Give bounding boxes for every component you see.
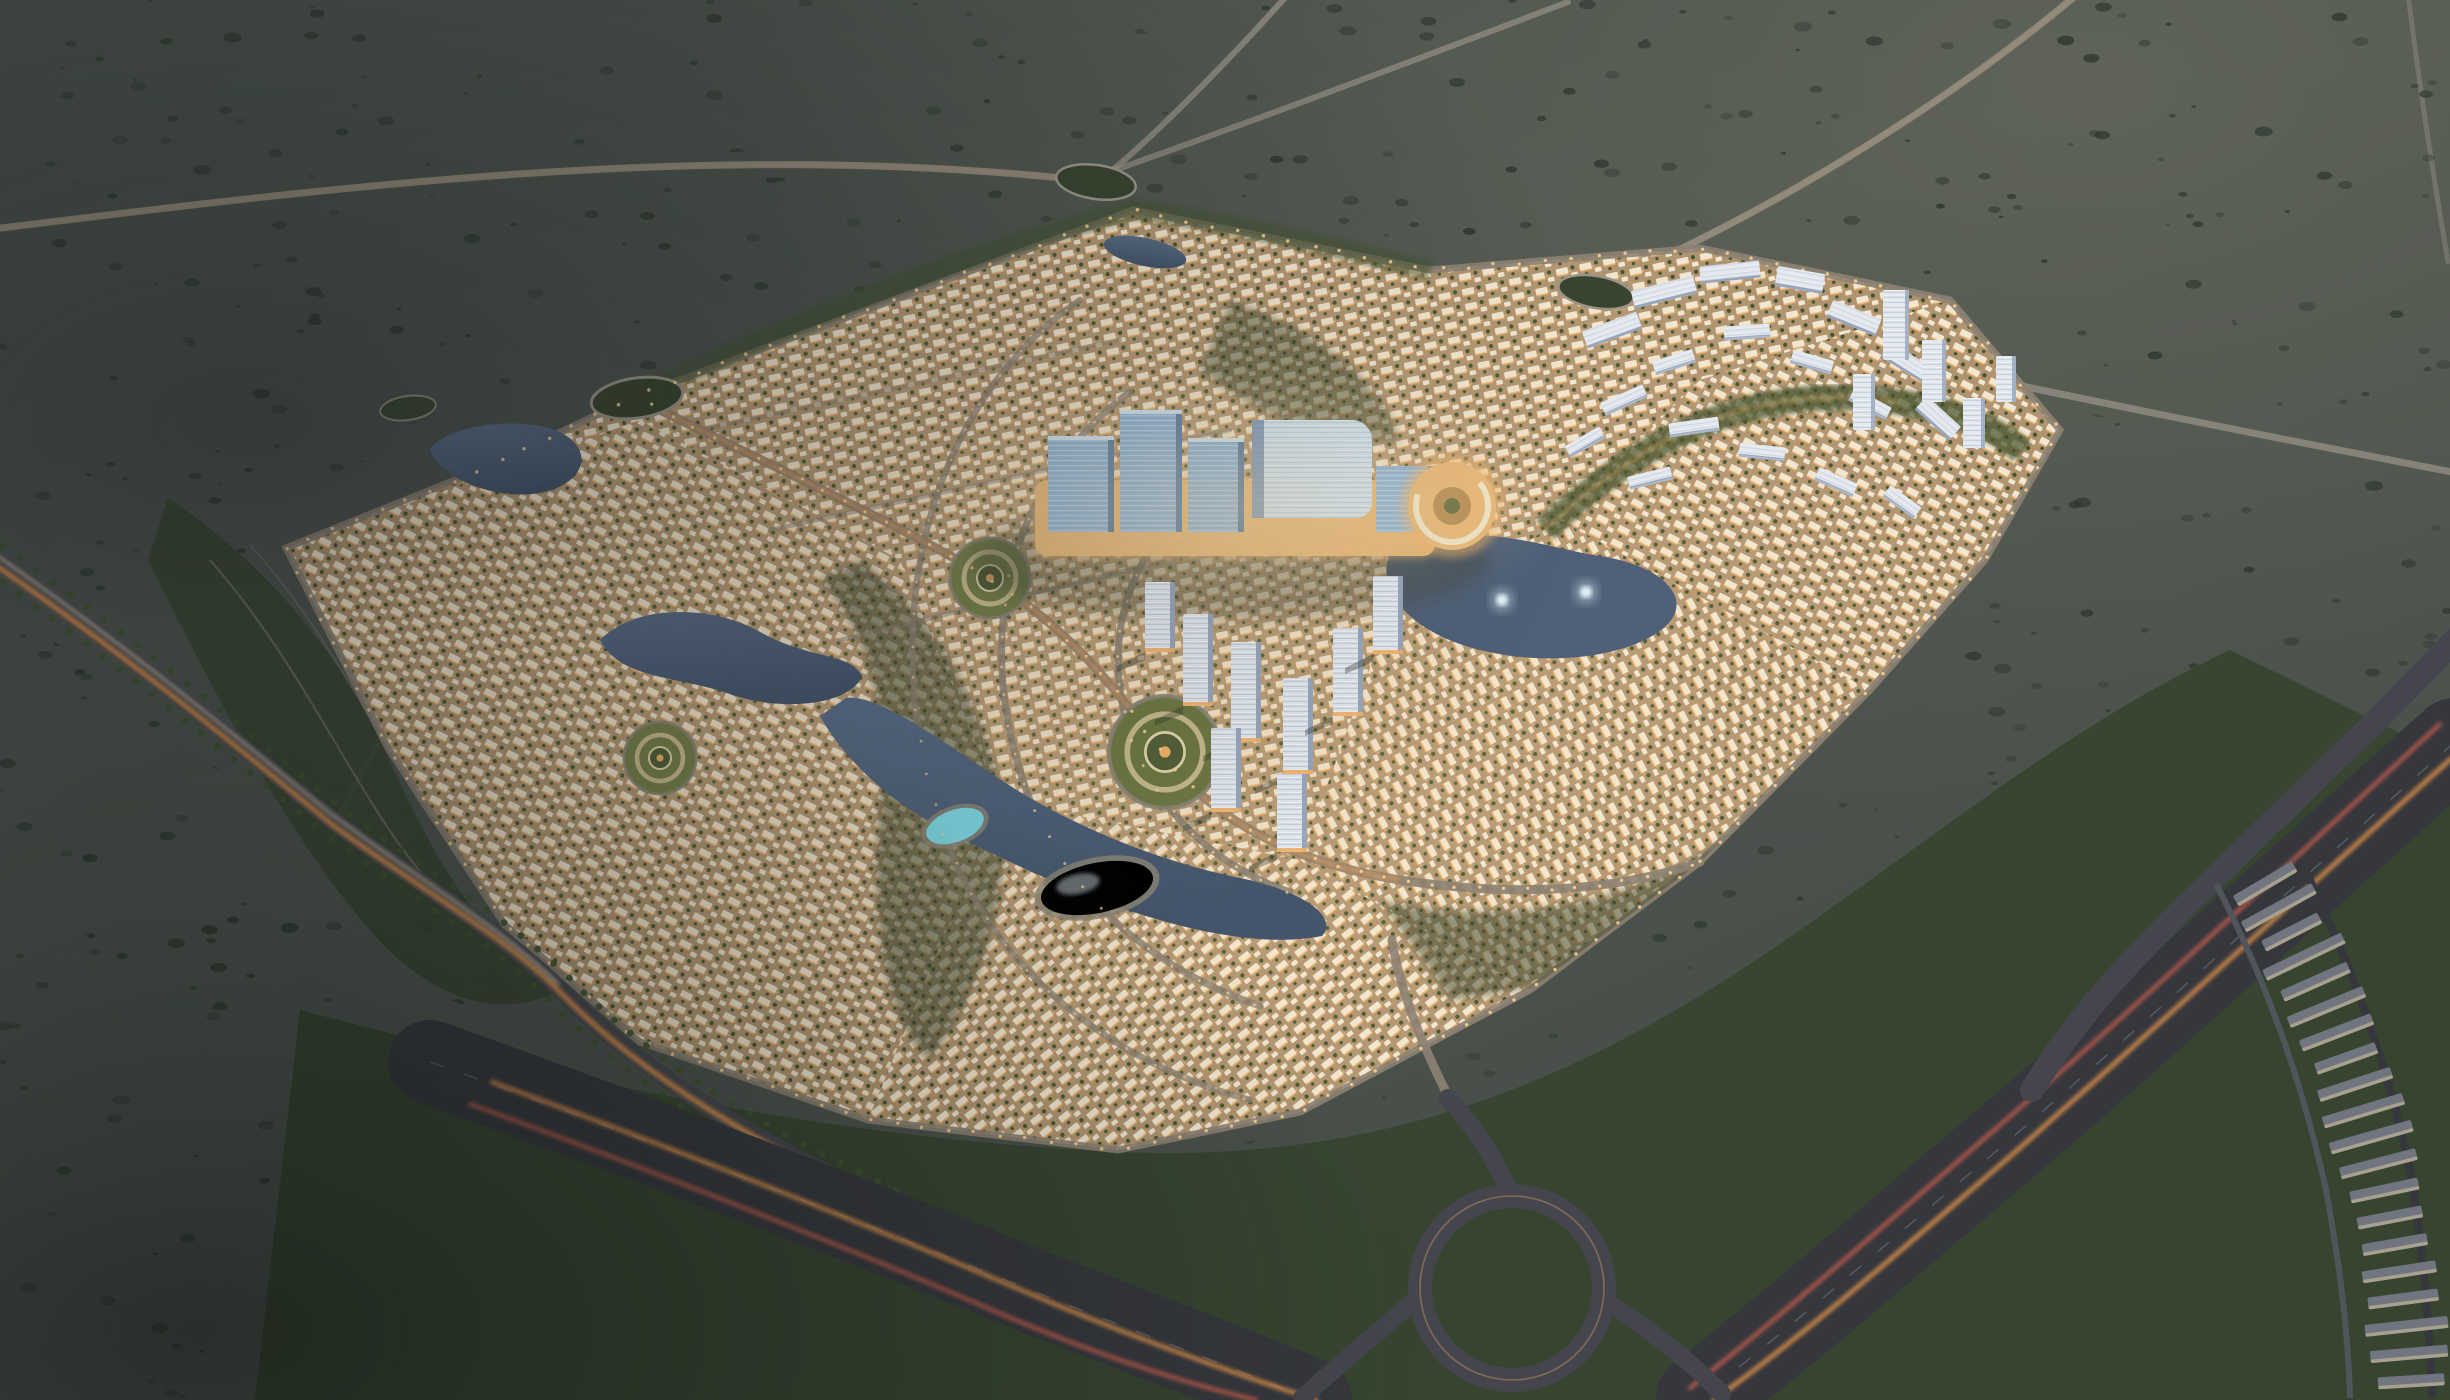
atmosphere <box>0 0 2450 1400</box>
aerial-rendering <box>0 0 2450 1400</box>
scene-canvas <box>0 0 2450 1400</box>
vignette-bottomleft <box>0 0 2450 1400</box>
